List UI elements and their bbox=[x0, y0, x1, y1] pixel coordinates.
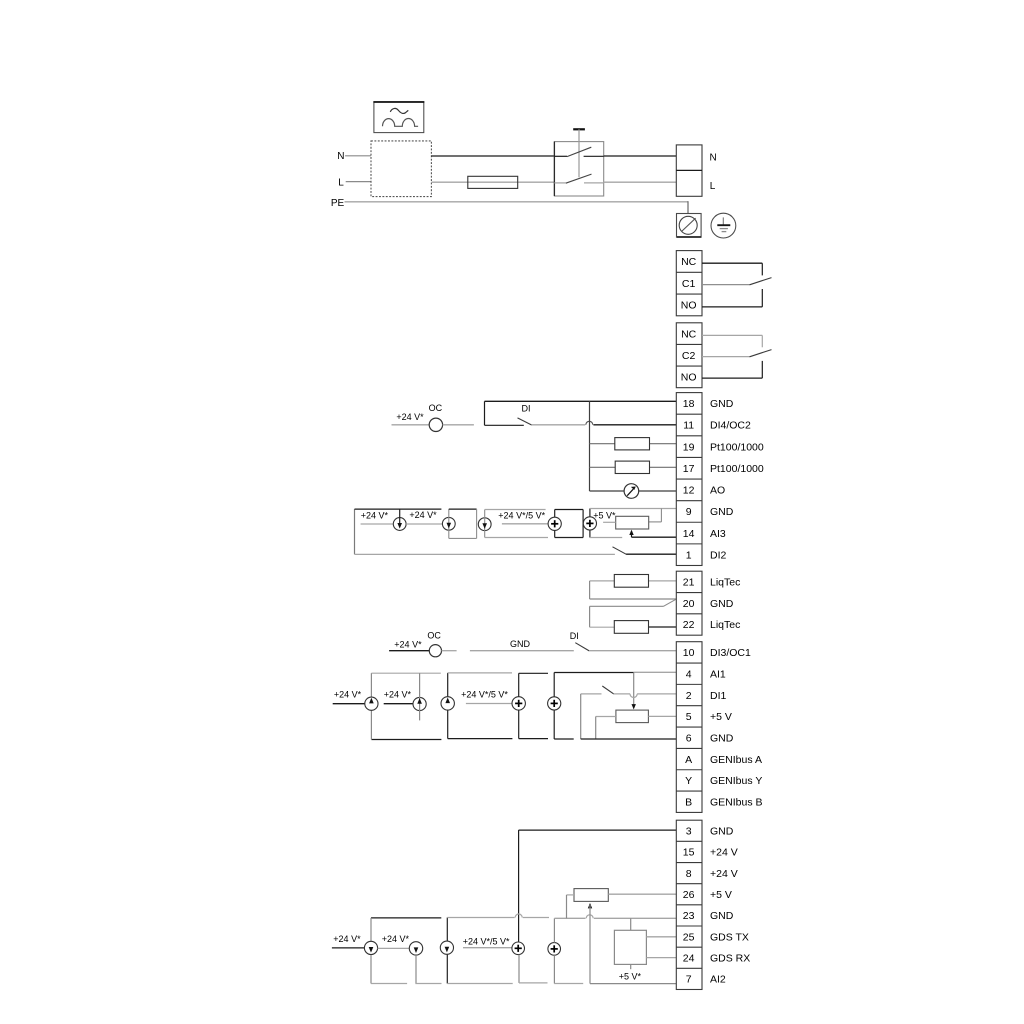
svg-text:NO: NO bbox=[681, 372, 697, 384]
svg-text:PE: PE bbox=[331, 198, 345, 209]
svg-text:GENIbus A: GENIbus A bbox=[710, 754, 762, 766]
svg-text:25: 25 bbox=[683, 931, 695, 943]
svg-text:NO: NO bbox=[681, 300, 697, 312]
svg-text:DI: DI bbox=[522, 404, 531, 414]
svg-text:+24 V*/5 V*: +24 V*/5 V* bbox=[461, 690, 508, 700]
svg-text:+5 V: +5 V bbox=[710, 889, 732, 901]
svg-text:NC: NC bbox=[681, 256, 697, 268]
svg-text:C1: C1 bbox=[682, 278, 696, 290]
svg-text:15: 15 bbox=[683, 847, 695, 859]
svg-text:3: 3 bbox=[686, 825, 692, 837]
svg-text:+5 V: +5 V bbox=[710, 711, 732, 723]
svg-text:NC: NC bbox=[681, 328, 697, 340]
svg-text:+24 V*: +24 V* bbox=[361, 510, 389, 520]
svg-text:GND: GND bbox=[710, 398, 734, 410]
svg-text:5: 5 bbox=[686, 711, 692, 723]
svg-text:GND: GND bbox=[710, 825, 734, 837]
svg-text:Pt100/1000: Pt100/1000 bbox=[710, 463, 764, 475]
svg-text:4: 4 bbox=[686, 668, 692, 680]
svg-text:+24 V*: +24 V* bbox=[382, 934, 410, 944]
svg-text:12: 12 bbox=[683, 485, 695, 497]
svg-text:GND: GND bbox=[510, 639, 531, 649]
svg-text:19: 19 bbox=[683, 441, 695, 453]
svg-text:+24 V: +24 V bbox=[710, 847, 738, 859]
svg-text:2: 2 bbox=[686, 690, 692, 702]
svg-text:C2: C2 bbox=[682, 350, 696, 362]
svg-text:+5 V*: +5 V* bbox=[593, 510, 616, 520]
svg-text:AI1: AI1 bbox=[710, 668, 726, 680]
svg-text:+24 V*: +24 V* bbox=[384, 689, 412, 699]
svg-text:GENIbus B: GENIbus B bbox=[710, 796, 763, 808]
svg-text:10: 10 bbox=[683, 647, 695, 659]
svg-text:N: N bbox=[710, 153, 717, 164]
svg-text:8: 8 bbox=[686, 868, 692, 880]
svg-text:Pt100/1000: Pt100/1000 bbox=[710, 441, 764, 453]
svg-text:17: 17 bbox=[683, 463, 695, 475]
svg-text:B: B bbox=[685, 796, 692, 808]
svg-text:LiqTec: LiqTec bbox=[710, 619, 740, 631]
svg-text:L: L bbox=[338, 178, 344, 189]
svg-text:7: 7 bbox=[686, 974, 692, 986]
svg-text:DI3/OC1: DI3/OC1 bbox=[710, 647, 751, 659]
svg-text:14: 14 bbox=[683, 528, 695, 540]
svg-text:+5 V*: +5 V* bbox=[619, 971, 642, 981]
svg-text:A: A bbox=[685, 754, 692, 766]
svg-text:6: 6 bbox=[686, 732, 692, 744]
svg-text:AI3: AI3 bbox=[710, 528, 726, 540]
svg-text:20: 20 bbox=[683, 598, 695, 610]
svg-text:+24 V*: +24 V* bbox=[394, 639, 422, 649]
svg-text:GND: GND bbox=[710, 506, 734, 518]
svg-text:DI2: DI2 bbox=[710, 549, 727, 561]
svg-text:1: 1 bbox=[686, 549, 692, 561]
svg-text:11: 11 bbox=[683, 420, 694, 432]
svg-text:+24 V*/5 V*: +24 V*/5 V* bbox=[463, 936, 510, 946]
svg-text:AI2: AI2 bbox=[710, 974, 726, 986]
svg-text:26: 26 bbox=[683, 889, 695, 901]
svg-text:+24 V: +24 V bbox=[710, 868, 738, 880]
svg-text:GDS RX: GDS RX bbox=[710, 952, 750, 964]
svg-text:DI: DI bbox=[570, 631, 579, 641]
svg-text:GENIbus Y: GENIbus Y bbox=[710, 775, 762, 787]
svg-text:DI4/OC2: DI4/OC2 bbox=[710, 420, 751, 432]
svg-text:18: 18 bbox=[683, 398, 695, 410]
svg-text:21: 21 bbox=[683, 577, 695, 589]
svg-text:+24 V*/5 V*: +24 V*/5 V* bbox=[498, 510, 545, 520]
svg-text:DI1: DI1 bbox=[710, 690, 727, 702]
svg-text:23: 23 bbox=[683, 910, 695, 922]
svg-text:AO: AO bbox=[710, 485, 725, 497]
svg-text:GND: GND bbox=[710, 732, 734, 744]
svg-text:N: N bbox=[337, 151, 344, 162]
svg-text:22: 22 bbox=[683, 619, 695, 631]
svg-text:+24 V*: +24 V* bbox=[396, 412, 424, 422]
svg-text:Y: Y bbox=[685, 775, 692, 787]
svg-text:+24 V*: +24 V* bbox=[333, 934, 361, 944]
svg-text:GND: GND bbox=[710, 598, 734, 610]
svg-text:GDS TX: GDS TX bbox=[710, 931, 749, 943]
svg-text:9: 9 bbox=[686, 506, 692, 518]
svg-text:OC: OC bbox=[427, 630, 441, 640]
svg-text:+24 V*: +24 V* bbox=[409, 510, 437, 520]
svg-text:+24 V*: +24 V* bbox=[334, 689, 362, 699]
svg-text:GND: GND bbox=[710, 910, 734, 922]
svg-text:L: L bbox=[710, 181, 716, 192]
svg-text:LiqTec: LiqTec bbox=[710, 577, 740, 589]
svg-text:OC: OC bbox=[429, 403, 443, 413]
svg-text:24: 24 bbox=[683, 952, 695, 964]
